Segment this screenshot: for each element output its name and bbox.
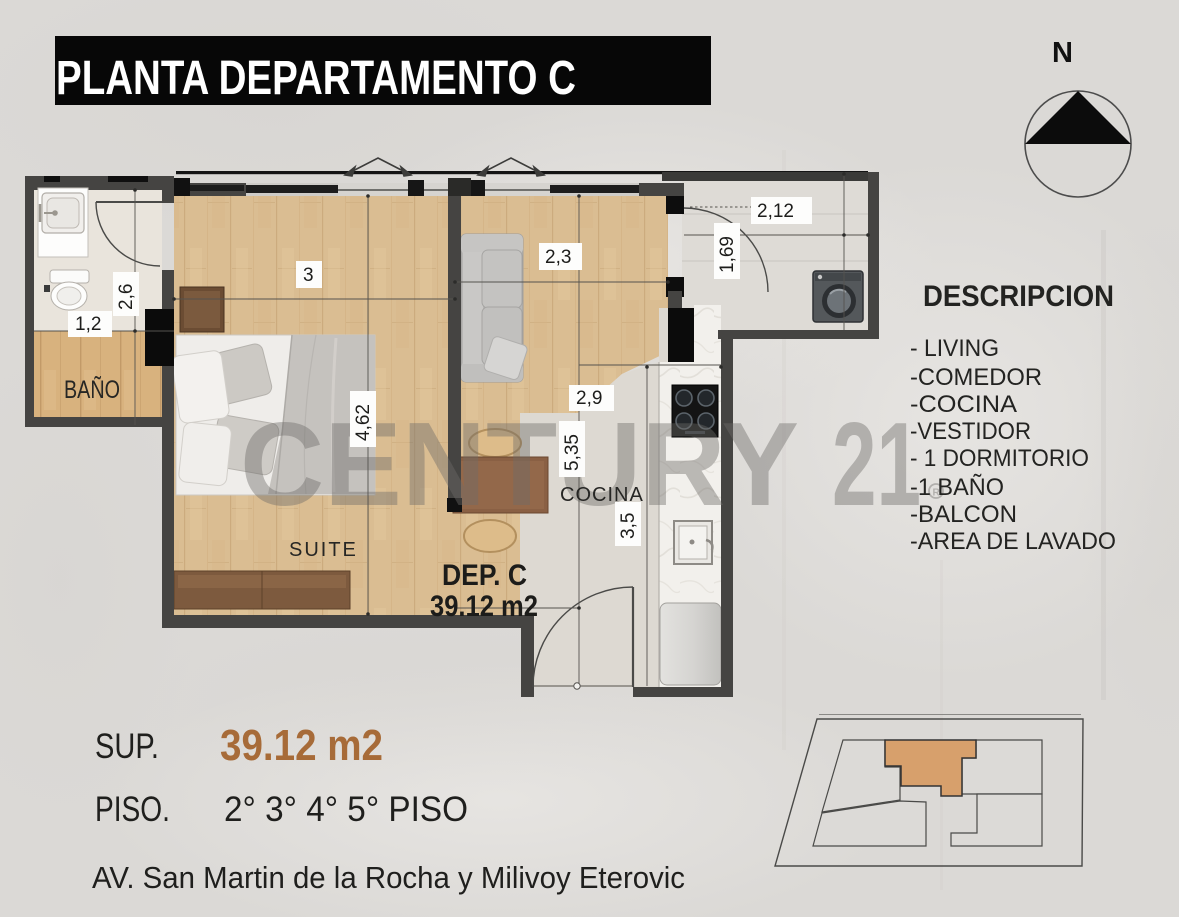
svg-text:-COMEDOR: -COMEDOR xyxy=(910,364,1042,391)
svg-text:- 1 DORMITORIO: - 1 DORMITORIO xyxy=(910,445,1089,472)
svg-text:3,5: 3,5 xyxy=(618,513,639,539)
svg-text:-COCINA: -COCINA xyxy=(910,391,1017,418)
svg-text:5,35: 5,35 xyxy=(562,434,583,471)
svg-text:COCINA: COCINA xyxy=(560,484,644,506)
svg-text:1,2: 1,2 xyxy=(75,314,101,335)
svg-text:2,3: 2,3 xyxy=(545,247,571,268)
svg-text:-AREA DE LAVADO: -AREA DE LAVADO xyxy=(910,528,1116,555)
svg-text:-1 BAÑO: -1 BAÑO xyxy=(910,474,1004,501)
svg-text:21: 21 xyxy=(832,398,921,531)
svg-text:2° 3° 4° 5° PISO: 2° 3° 4° 5° PISO xyxy=(224,790,468,829)
svg-text:DESCRIPCION: DESCRIPCION xyxy=(923,280,1114,313)
svg-text:SUITE: SUITE xyxy=(289,539,358,561)
svg-text:39.12 m2: 39.12 m2 xyxy=(430,590,538,623)
svg-text:- LIVING: - LIVING xyxy=(910,335,999,362)
svg-text:2,9: 2,9 xyxy=(576,388,602,409)
svg-text:2,12: 2,12 xyxy=(757,201,794,222)
svg-text:AV. San Martin de la Rocha y M: AV. San Martin de la Rocha y Milivoy Ete… xyxy=(92,860,685,895)
svg-text:SUP.: SUP. xyxy=(95,727,159,766)
svg-text:CENTURY: CENTURY xyxy=(240,398,799,531)
svg-text:1,69: 1,69 xyxy=(717,236,738,273)
svg-text:39.12 m2: 39.12 m2 xyxy=(220,721,383,770)
svg-text:PLANTA DEPARTAMENTO C: PLANTA DEPARTAMENTO C xyxy=(56,52,576,105)
svg-text:N: N xyxy=(1052,37,1073,69)
svg-text:PISO.: PISO. xyxy=(95,790,170,829)
svg-text:BAÑO: BAÑO xyxy=(64,375,120,404)
svg-text:4,62: 4,62 xyxy=(353,404,374,441)
svg-text:-VESTIDOR: -VESTIDOR xyxy=(910,418,1031,445)
svg-text:2,6: 2,6 xyxy=(116,284,137,310)
svg-text:DEP. C: DEP. C xyxy=(442,559,527,592)
svg-text:-BALCON: -BALCON xyxy=(910,501,1017,528)
svg-text:3: 3 xyxy=(303,265,314,286)
